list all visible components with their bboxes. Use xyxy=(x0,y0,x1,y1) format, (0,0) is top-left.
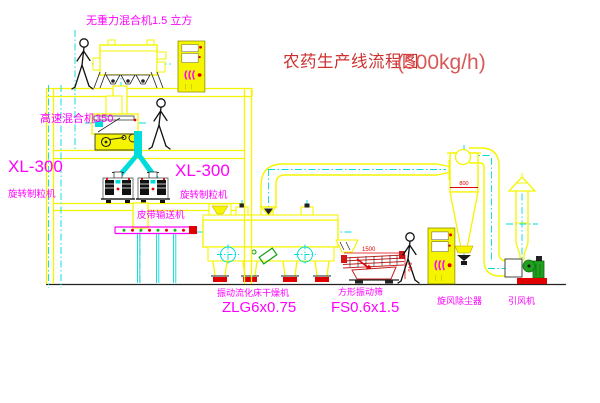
exhaust-duct xyxy=(261,160,449,215)
fluid-bed-dryer-machine xyxy=(203,204,358,283)
label-dryer-model: ZLG6x0.75 xyxy=(222,299,296,316)
fan-machine xyxy=(505,256,547,284)
control-cabinet-bottom xyxy=(428,228,455,284)
label-granulator-mid-name: 旋转制粒机 xyxy=(180,189,228,201)
gravity-mixer-machine xyxy=(93,40,166,114)
label-belt-conveyor: 皮带输送机 xyxy=(137,209,185,221)
label-cyclone: 旋风除尘器 xyxy=(437,295,482,306)
vibrating-sieve-machine xyxy=(341,251,405,284)
label-gravity-mixer: 无重力混合机1.5 立方 xyxy=(86,13,192,27)
label-sieve-name: 方形振动筛 xyxy=(338,286,383,297)
granulator-right-machine xyxy=(136,172,170,203)
label-dryer-name: 振动流化床干燥机 xyxy=(217,287,289,298)
label-granulator-left-model: XL-300 xyxy=(8,157,63,176)
drawing-canvas: 800 xyxy=(0,0,600,403)
label-fan: 引风机 xyxy=(508,295,535,306)
granulator-left-machine xyxy=(101,172,135,203)
belt-conveyor-machine xyxy=(115,226,197,283)
control-cabinet-top xyxy=(178,41,205,92)
sieve-height-dim: 546 xyxy=(406,262,412,271)
label-high-speed-mixer: 高速混合机350 xyxy=(40,111,113,125)
drawing-title-capacity: (500kg/h) xyxy=(397,51,486,74)
label-sieve-model: FS0.6x1.5 xyxy=(331,299,399,316)
cad-drawing-page: 800 xyxy=(0,0,600,403)
label-granulator-mid-model: XL-300 xyxy=(175,161,230,180)
label-granulator-left-name: 旋转制粒机 xyxy=(8,188,56,200)
cyclone-diameter-dim: 800 xyxy=(459,181,468,187)
sieve-width-dim: 1500 xyxy=(362,247,376,253)
person-figure xyxy=(149,99,170,149)
